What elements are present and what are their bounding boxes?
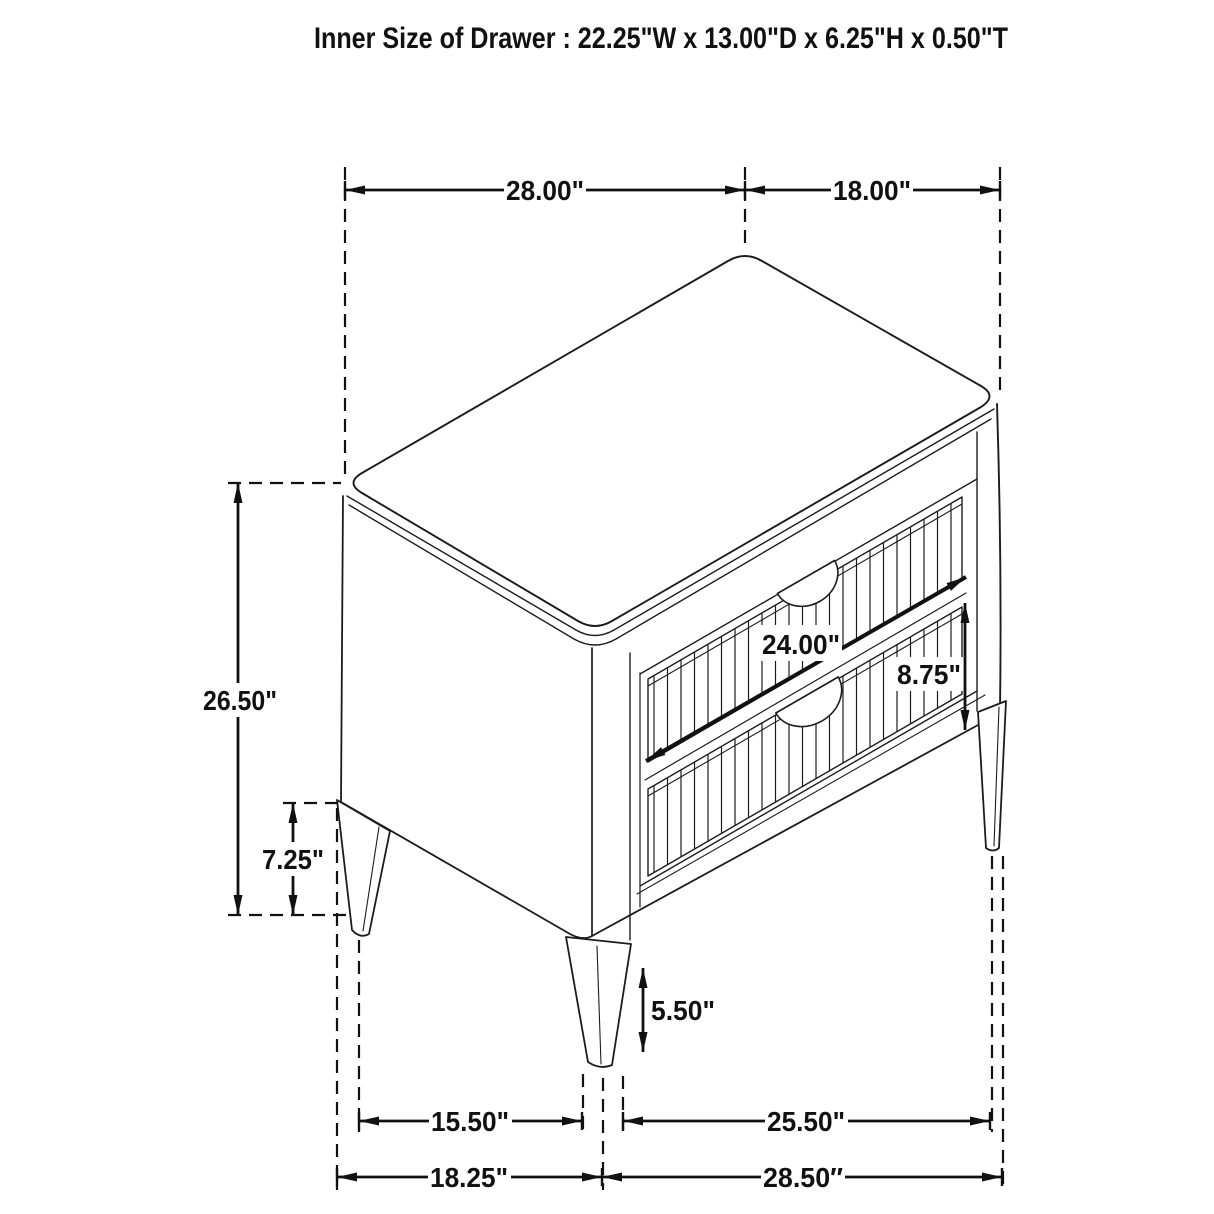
diagram-page: 28.00" 18.00" 26.50" 7.25" 24.00" 8.75" … [0,0,1214,1214]
nightstand-dimension-diagram: 28.00" 18.00" 26.50" 7.25" 24.00" 8.75" … [0,0,1214,1214]
rear-right-leg [978,701,1006,851]
left-side-panel [341,496,343,802]
page-title: Inner Size of Drawer : 22.25"W x 13.00"D… [314,22,1008,55]
dim-base-front-label: 25.50" [767,1106,845,1137]
dim-top-depth-label: 18.00" [833,175,911,206]
dim-leg-height-label: 5.50" [651,995,715,1026]
dim-drawer-width-label: 24.00" [762,629,840,660]
dim-top-width-label: 28.00" [506,175,584,206]
dim-height-label: 26.50" [203,685,277,716]
dim-base-side-label: 15.50" [431,1106,509,1137]
dim-clearance-label: 7.25" [262,844,324,875]
dim-floor-depth-label: 18.25" [430,1162,508,1193]
dim-floor-width-label: 28.50″ [763,1162,843,1193]
dim-drawer-height-label: 8.75" [897,659,961,690]
right-corner-post-outer [997,404,1001,711]
